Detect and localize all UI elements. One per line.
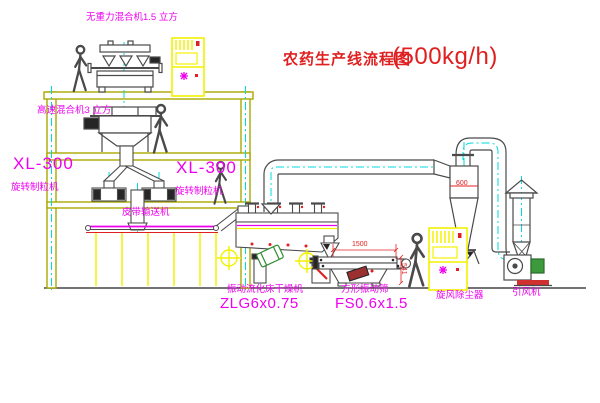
cabinet-indicator-icon bbox=[439, 266, 447, 274]
cyclone-name-label: 旋风除尘器 bbox=[436, 291, 484, 301]
zero-gravity-mixer bbox=[88, 41, 162, 92]
conveyor-legs bbox=[96, 233, 216, 286]
fluid-bed-dryer bbox=[217, 204, 338, 284]
fan-name-label: 引风机 bbox=[512, 288, 541, 298]
indicator-light-icon bbox=[458, 233, 462, 238]
crosshair-target-icon bbox=[217, 246, 241, 270]
granulator-center bbox=[142, 181, 176, 201]
control-cabinet-right bbox=[429, 228, 467, 290]
induced-draft-fan bbox=[504, 255, 552, 286]
granulator-left bbox=[92, 181, 126, 201]
granulator-center-name-label: 旋转制粒机 bbox=[175, 187, 223, 197]
screen-height-dimension: 541 bbox=[400, 263, 407, 275]
belt-conveyor bbox=[86, 209, 244, 286]
exhaust-stack bbox=[506, 180, 537, 256]
diagram-title-capacity: (500kg/h) bbox=[392, 45, 498, 69]
belt-conveyor-label: 皮带输送机 bbox=[122, 208, 170, 218]
flow-diagram-canvas: 农药生产线流程图 (500kg/h) 无重力混合机1.5 立方 高速混合机3 立… bbox=[0, 0, 600, 403]
zero-gravity-mixer-label: 无重力混合机1.5 立方 bbox=[86, 13, 178, 23]
granulator-center-model-label: XL-300 bbox=[176, 159, 237, 176]
cyclone-diameter-dimension: 600 bbox=[456, 180, 468, 187]
granulator-left-model-label: XL-300 bbox=[13, 155, 74, 172]
dryer-name-label: 振动流化床干燥机 bbox=[227, 285, 303, 295]
fan-base bbox=[517, 280, 549, 285]
cabinet-indicator-icon bbox=[180, 72, 188, 80]
indicator-light-icon bbox=[196, 41, 200, 46]
worker-figure-icon bbox=[74, 46, 86, 91]
dryer-nozzles bbox=[245, 204, 325, 214]
screen-name-label: 方形振动筛 bbox=[341, 285, 389, 295]
screen-length-dimension: 1500 bbox=[352, 241, 368, 248]
control-cabinet-top bbox=[172, 38, 204, 96]
fan-motor bbox=[531, 259, 544, 273]
screen-model-label: FS0.6x1.5 bbox=[335, 296, 408, 311]
high-speed-mixer-label: 高速混合机3 立方 bbox=[37, 106, 111, 116]
granulator-left-name-label: 旋转制粒机 bbox=[11, 183, 59, 193]
dryer-model-label: ZLG6x0.75 bbox=[220, 296, 299, 311]
exhaust-duct bbox=[262, 160, 450, 214]
worker-figure-icon bbox=[409, 234, 423, 286]
